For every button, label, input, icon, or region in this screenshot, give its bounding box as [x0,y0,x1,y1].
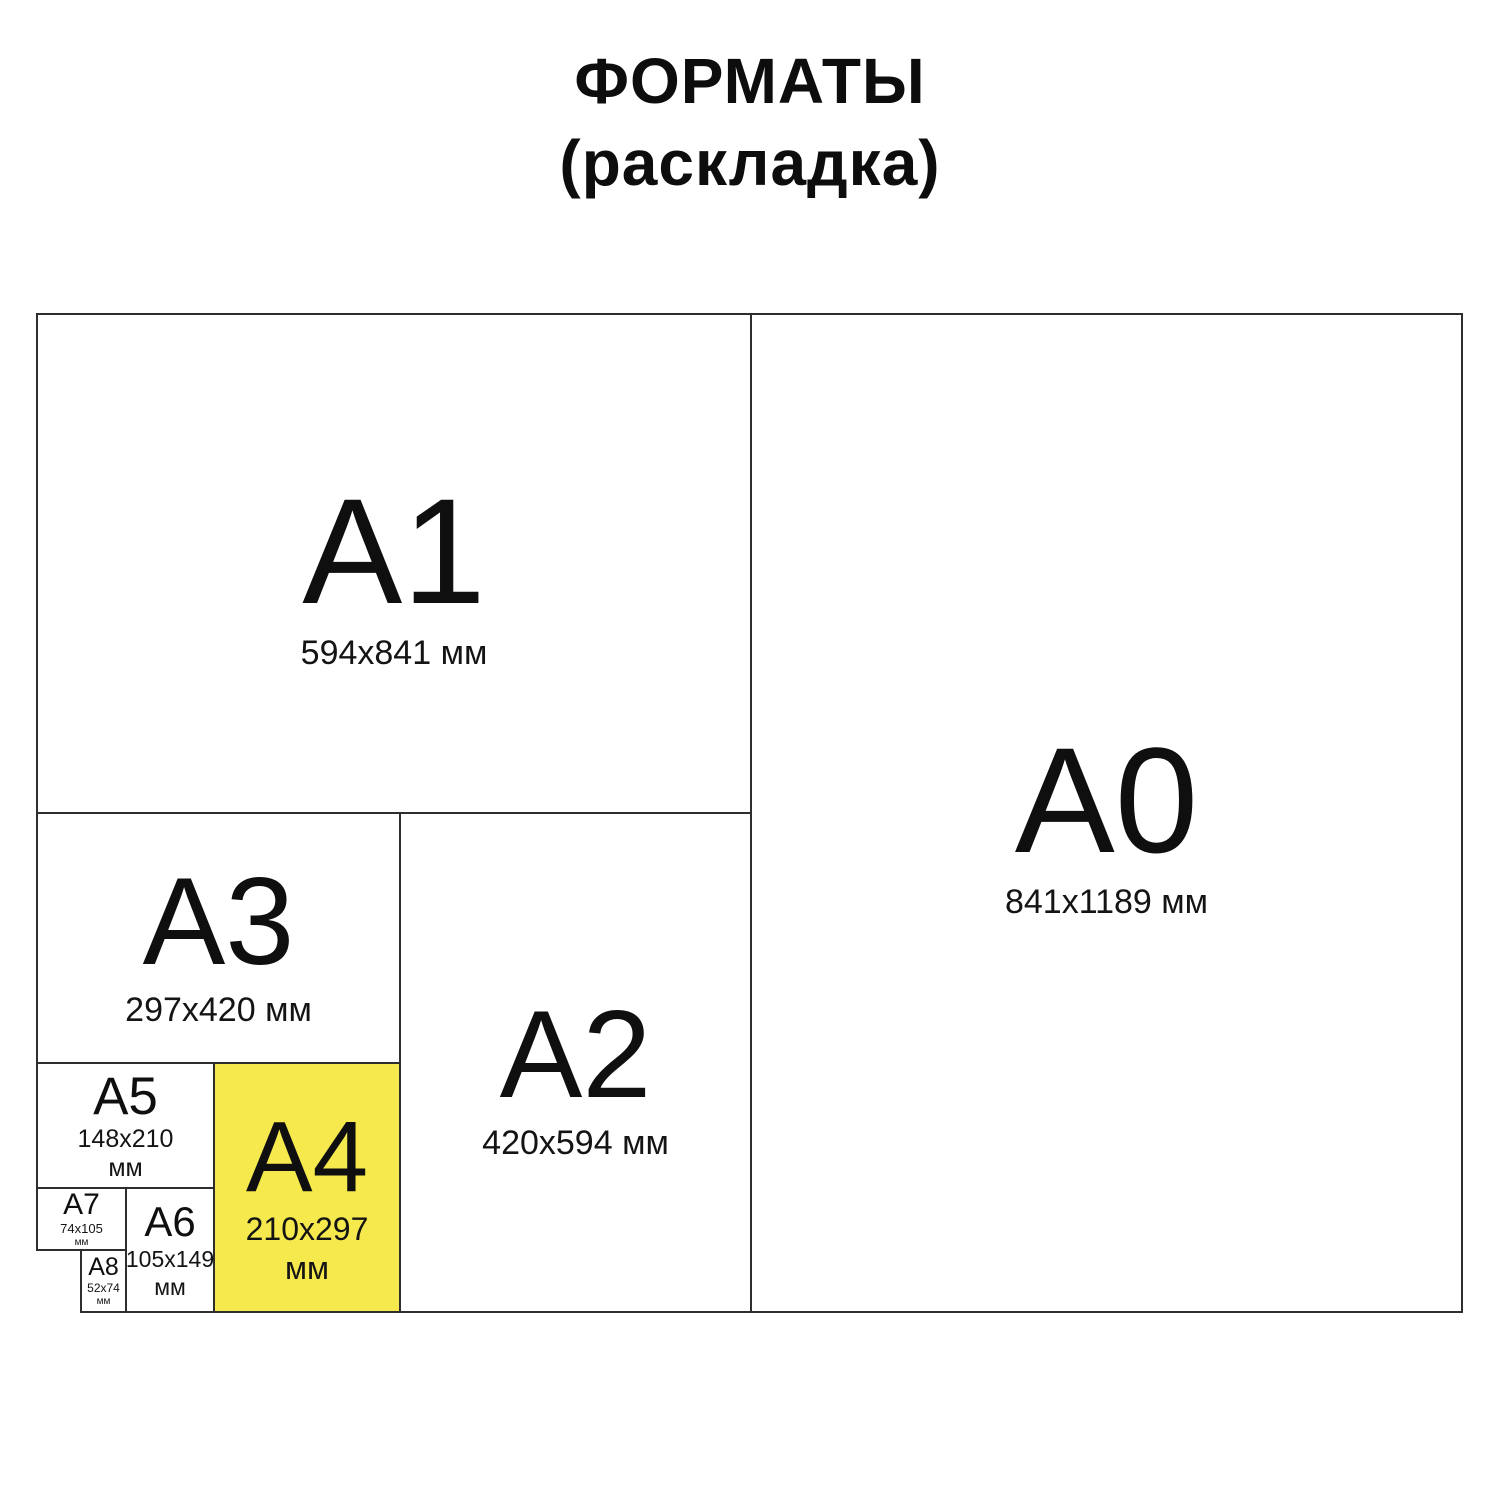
format-a3-label: A3 [143,856,295,988]
format-a8-unit: мм [97,1295,111,1308]
format-a0-size: 841x1189 мм [1005,879,1208,925]
diagram-title-line2: (раскладка) [0,122,1500,204]
format-a5-unit: мм [108,1154,142,1183]
format-a6-size: 105x149 [126,1245,214,1273]
format-box-a7: A7 74x105 мм [36,1189,125,1251]
format-a4-label: A4 [246,1104,368,1210]
format-a6-unit: мм [154,1273,186,1301]
format-a2-text: A2 420x594 мм [482,989,669,1165]
format-box-a0: A0 841x1189 мм [750,313,1463,1313]
format-a7-size: 74x105 [60,1221,103,1236]
format-box-a6: A6 105x149 мм [125,1189,213,1313]
format-a0-text: A0 841x1189 мм [1005,721,1208,925]
format-box-a8: A8 52x74 мм [80,1251,125,1313]
format-a2-label: A2 [500,989,652,1121]
format-a5-label: A5 [93,1069,158,1125]
format-a8-label: A8 [88,1254,119,1281]
format-a1-text: A1 594x841 мм [301,472,488,676]
format-box-a2: A2 420x594 мм [399,814,750,1313]
format-a6-label: A6 [144,1199,195,1245]
format-a8-size: 52x74 [87,1281,120,1295]
diagram-title: ФОРМАТЫ (раскладка) [0,40,1500,204]
format-layout-sheet: A1 594x841 мм A0 841x1189 мм A3 297x420 … [36,313,1463,1313]
format-a4-unit: мм [285,1249,329,1288]
paper-formats-diagram: ФОРМАТЫ (раскладка) A1 594x841 мм A0 841… [0,0,1500,1500]
format-a5-text: A5 148x210 мм [78,1069,174,1183]
format-a8-text: A8 52x74 мм [87,1254,120,1308]
format-box-a4-highlighted: A4 210x297 мм [213,1064,399,1313]
format-a7-label: A7 [63,1189,100,1221]
format-a1-size: 594x841 мм [301,630,488,676]
format-a4-text: A4 210x297 мм [246,1104,369,1288]
format-box-a3: A3 297x420 мм [36,814,399,1064]
diagram-title-line1: ФОРМАТЫ [0,40,1500,122]
format-a1-label: A1 [302,472,485,630]
format-a7-unit: мм [75,1236,89,1249]
format-box-a5: A5 148x210 мм [36,1064,213,1189]
format-a7-text: A7 74x105 мм [60,1189,103,1249]
format-a0-label: A0 [1015,721,1198,879]
format-a4-size: 210x297 [246,1210,369,1249]
format-a3-size: 297x420 мм [125,988,312,1032]
format-a5-size: 148x210 [78,1125,174,1154]
format-a3-text: A3 297x420 мм [125,856,312,1032]
format-a6-text: A6 105x149 мм [126,1199,214,1301]
format-a2-size: 420x594 мм [482,1121,669,1165]
format-box-a1: A1 594x841 мм [36,313,750,814]
